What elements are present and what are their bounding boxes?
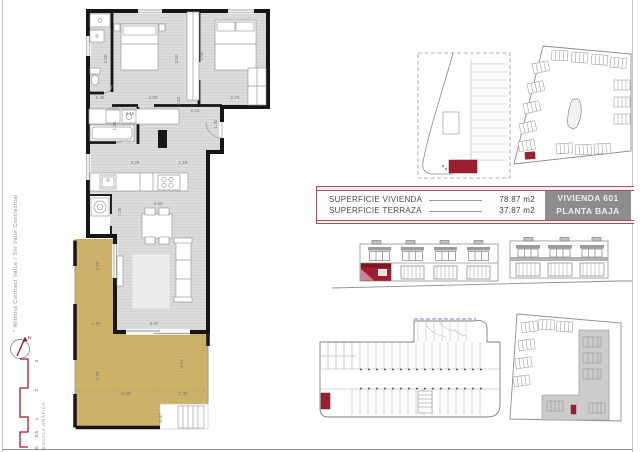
surface-vivienda-label: SUPERFICIE VIVIENDA (329, 195, 422, 204)
leader-line (429, 199, 482, 201)
site-plan (512, 42, 638, 182)
graphic-scale: 0 0.5 1 2 3 ESCALA GRÁFICA (16, 357, 46, 449)
surface-terraza-value: 37.87 m2 (489, 206, 535, 215)
scale-label: ESCALA GRÁFICA (41, 357, 46, 449)
plan-sheet: * Without Contract Value / Sin Valor Con… (0, 0, 640, 452)
floor-plan: 1.453.803.003.501.902.702.822.411.404.16… (50, 4, 290, 450)
dimension-label: 2.82 (176, 96, 181, 105)
stairs (178, 406, 204, 428)
north-label: N (28, 335, 31, 340)
dimension-label: 3.50 (174, 54, 179, 63)
location-plan (505, 309, 633, 429)
dimension-label: 1.40 (213, 119, 218, 128)
garage-plan (314, 309, 508, 429)
highlighted-unit (525, 152, 535, 160)
scale-tick: 0 (34, 446, 39, 449)
dimension-label: 1.90 (199, 51, 204, 60)
dimension-label: 1.37 (92, 321, 101, 326)
unit-name: VIVIENDA 601 (557, 192, 618, 205)
dimension-label: 3.00 (149, 95, 158, 100)
parking-plan (413, 50, 515, 182)
leader-line (429, 210, 482, 212)
dimension-label: 3.80 (103, 54, 108, 63)
dimension-label: 1.18 (179, 160, 188, 165)
table-row: SUPERFICIE VIVIENDA 78.87 m2 (329, 195, 535, 204)
highlighted-unit (449, 160, 477, 173)
summary-table: SUPERFICIE VIVIENDA 78.87 m2 SUPERFICIE … (316, 186, 634, 224)
scale-ticks: 0 0.5 1 2 3 (34, 357, 40, 449)
table-row: SUPERFICIE TERRAZA 37.87 m2 (329, 206, 535, 215)
dimension-label: 7.45 (117, 207, 122, 216)
dimension-label: 2.70 (231, 95, 240, 100)
scale-bar (17, 357, 29, 449)
dimension-label: 3.50 (154, 201, 163, 206)
dimension-label: 1.35 (112, 121, 117, 130)
unit-badge: VIVIENDA 601 PLANTA BAJA (545, 191, 631, 220)
elevations (326, 236, 636, 298)
dimension-label: 4.78 (95, 261, 100, 270)
page-border-left (2, 0, 3, 452)
surface-terraza-label: SUPERFICIE TERRAZA (329, 206, 422, 215)
elevation-right-building (510, 238, 608, 279)
scale-tick: 3 (34, 360, 39, 363)
highlighted-unit (321, 393, 330, 409)
dimension-label: 4.16 (126, 111, 135, 116)
highlighted-unit (571, 405, 576, 414)
scale-tick: 2 (34, 389, 39, 392)
elevation-left-building (360, 241, 498, 282)
dimension-label: 3.26 (131, 160, 140, 165)
dimension-label: 5.78 (95, 371, 100, 380)
surface-rows: SUPERFICIE VIVIENDA 78.87 m2 SUPERFICIE … (317, 191, 543, 220)
dimension-label: 1.05 (179, 391, 188, 396)
scale-tick: 0.5 (34, 431, 39, 437)
dimension-label: 2.41 (191, 108, 200, 113)
dimension-label: 4.21 (179, 359, 184, 368)
disclaimer-note: * Without Contract Value / Sin Valor Con… (13, 194, 19, 332)
dimension-label: 0.87 (158, 413, 163, 422)
scale-tick: 1 (34, 418, 39, 421)
unit-floor: PLANTA BAJA (556, 205, 619, 218)
surface-vivienda-value: 78.87 m2 (489, 195, 535, 204)
dimension-label: 3.87 (150, 321, 159, 326)
dimension-label: 2.88 (122, 391, 131, 396)
dimension-label: 1.45 (96, 95, 105, 100)
